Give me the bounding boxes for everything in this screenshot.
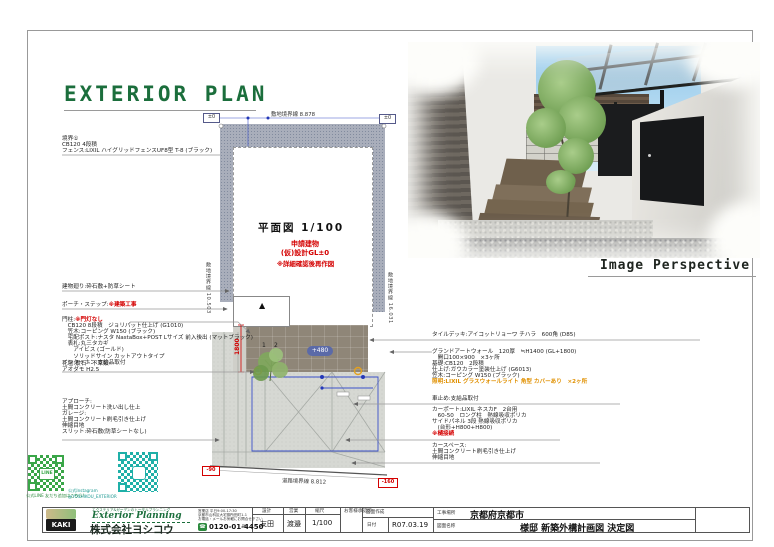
instagram-qr-code [118,452,158,492]
page-title: EXTERIOR PLAN [64,82,267,106]
level-br: -160 [378,478,398,488]
note-boundary: 境界① CB120 4段積 フェンス:LIXIL ハイグリッドフェンスUF8型 … [62,136,212,154]
company-logo-illustration [46,509,76,519]
perspective-caption: Image Perspective [600,258,750,273]
company-info: 営業店 平日9:00-17:30 京都市山科区大宅御所田町1-1 お電話・メール… [198,509,263,522]
line-logo: LINE [39,468,55,480]
note-porch-red: ※建築工事 [109,302,137,308]
company-info-line: お電話・メールお気軽にお問合せ下さい [198,517,263,521]
level-tl: ±0 [203,113,220,123]
tb-scale-value: 1/100 [312,519,332,527]
title-underline [64,110,256,111]
plan-driveway [212,372,385,468]
freedial-icon: ☎ [198,523,207,531]
tb-design-label: 設計 [262,508,271,514]
porch-triangle-mark: ▲ [259,301,265,310]
tb-site-label: 工事場所 [437,510,455,516]
plan-boundary-wall-top [220,124,385,147]
level-bl: -90 [202,466,220,476]
tb-sales-value: 渡邉 [287,519,301,529]
note-line: フェンス:LIXIL ハイグリッドフェンスUF8型 T-8 (ブラック) [62,148,212,154]
note-porch: ポーチ・ステップ:※建築工事 [62,302,136,308]
qr-finder [118,452,127,461]
note-building-perimeter: 建物廻り:砕石敷+防草シート [62,284,136,290]
note-approach: アプローチ: 土間コンクリート洗い出し仕上 ガレージ: 土間コンクリート刷毛引き… [62,399,147,436]
dim-left-label: 敷地境界線 10.503 [205,262,212,314]
note-gate-post: 門柱:※門灯なし CB120 8段積 ジョリパット仕上げ (G1010) 笠木:… [62,317,253,366]
mail-icon: ✉ [242,523,247,530]
deck-level-label: +480 [307,346,333,356]
plan-red-note-2: (仮)設計GL±0 [255,248,355,258]
tb-divider [305,507,306,533]
note-tile-deck: タイルデッキ:アイコットリョーワ チハラ 600角 (D85) [432,332,576,338]
instagram-caption-2: @YOSHIKOU_EXTERIOR [68,494,117,499]
tb-divider [362,517,433,518]
tb-date-value: R07.03.19 [392,521,428,529]
tb-scale-label: 縮尺 [315,508,324,514]
instagram-camera-icon [132,466,146,480]
note-grand-art-wall: グランドアートウォール 120厚 ≒H1400 (GL+1800) 開口100×… [432,349,587,386]
company-logo-plate: KAKI [46,519,76,531]
note-line: スリット:砕石敷(防草シートなし) [62,429,147,435]
drawing-sheet: EXTERIOR PLAN ▲ [0,0,774,547]
tb-divider [283,507,284,533]
plan-caption: 平面図 1/100 [258,220,344,235]
perspective-underline [588,276,756,277]
note-wheel-stop: 車止め:支給品取付 [432,396,479,402]
note-flowerbed: 花壇:景石・下草類 アオダモ H2.5 [62,361,109,373]
vignette [408,42,760,258]
tb-site-value: 京都府京都市 [470,508,524,521]
plan-boundary-wall-right [372,124,385,312]
tb-divider [252,514,340,515]
qr-finder [28,482,37,491]
note-carport-red: ※樋接続 [432,431,527,437]
plan-red-note-3: ※詳細確認後再作図 [248,259,363,268]
tb-divider [695,507,696,533]
note-carport: カーポート:LIXIL ネスカF 2台用 60-50 ロング柱 熱線吸収ポリカ … [432,407,527,437]
dim-road-label: 道路境界線 8.812 [282,476,326,486]
qr-finder [55,455,64,464]
tb-sales-label: 営業 [289,508,298,514]
qr-finder [28,455,37,464]
opening-marker-2: 2 [274,342,278,349]
dim-right-label: 敷地境界線 16.031 [387,272,394,324]
tb-created-label: 図面作成 [366,509,384,515]
qr-finder [118,483,127,492]
opening-marker-1: 1 [262,342,266,349]
qr-finder [149,452,158,461]
perspective-render [408,42,760,258]
tb-divider [340,507,341,533]
plan-boundary-wall-left [220,124,233,302]
tb-drawing-label: 図面名称 [437,523,455,529]
tb-drawing-value: 様邸 新築外構計画図 決定図 [520,521,634,534]
note-line: アオダモ H2.5 [62,367,109,373]
dim-top-label: 敷地境界線 8.878 [271,110,315,118]
note-wall-light: 照明:LIXIL グラスウォールライト 角型 カバーあり ×2ヶ所 [432,379,587,385]
company-name: 株式会社ヨシコウ [90,522,174,537]
note-carspace: カースペース: 土間コンクリート刷毛引き仕上げ 伸縮目地 [432,443,516,461]
phone-number: 0120-01-4450 [209,523,264,531]
level-tr: ±0 [379,114,396,124]
tb-divider [388,517,389,533]
note-porch-label: ポーチ・ステップ: [62,302,109,308]
instagram-caption-1: 公式Instagram [68,488,98,493]
line-qr-code: LINE [28,455,64,491]
note-line: 伸縮目地 [432,455,516,461]
tb-divider [433,507,434,533]
tb-date-label: 日付 [367,522,376,528]
tb-design-value: 友田 [260,519,274,529]
brand-name-en: Exterior Planning [92,511,182,521]
